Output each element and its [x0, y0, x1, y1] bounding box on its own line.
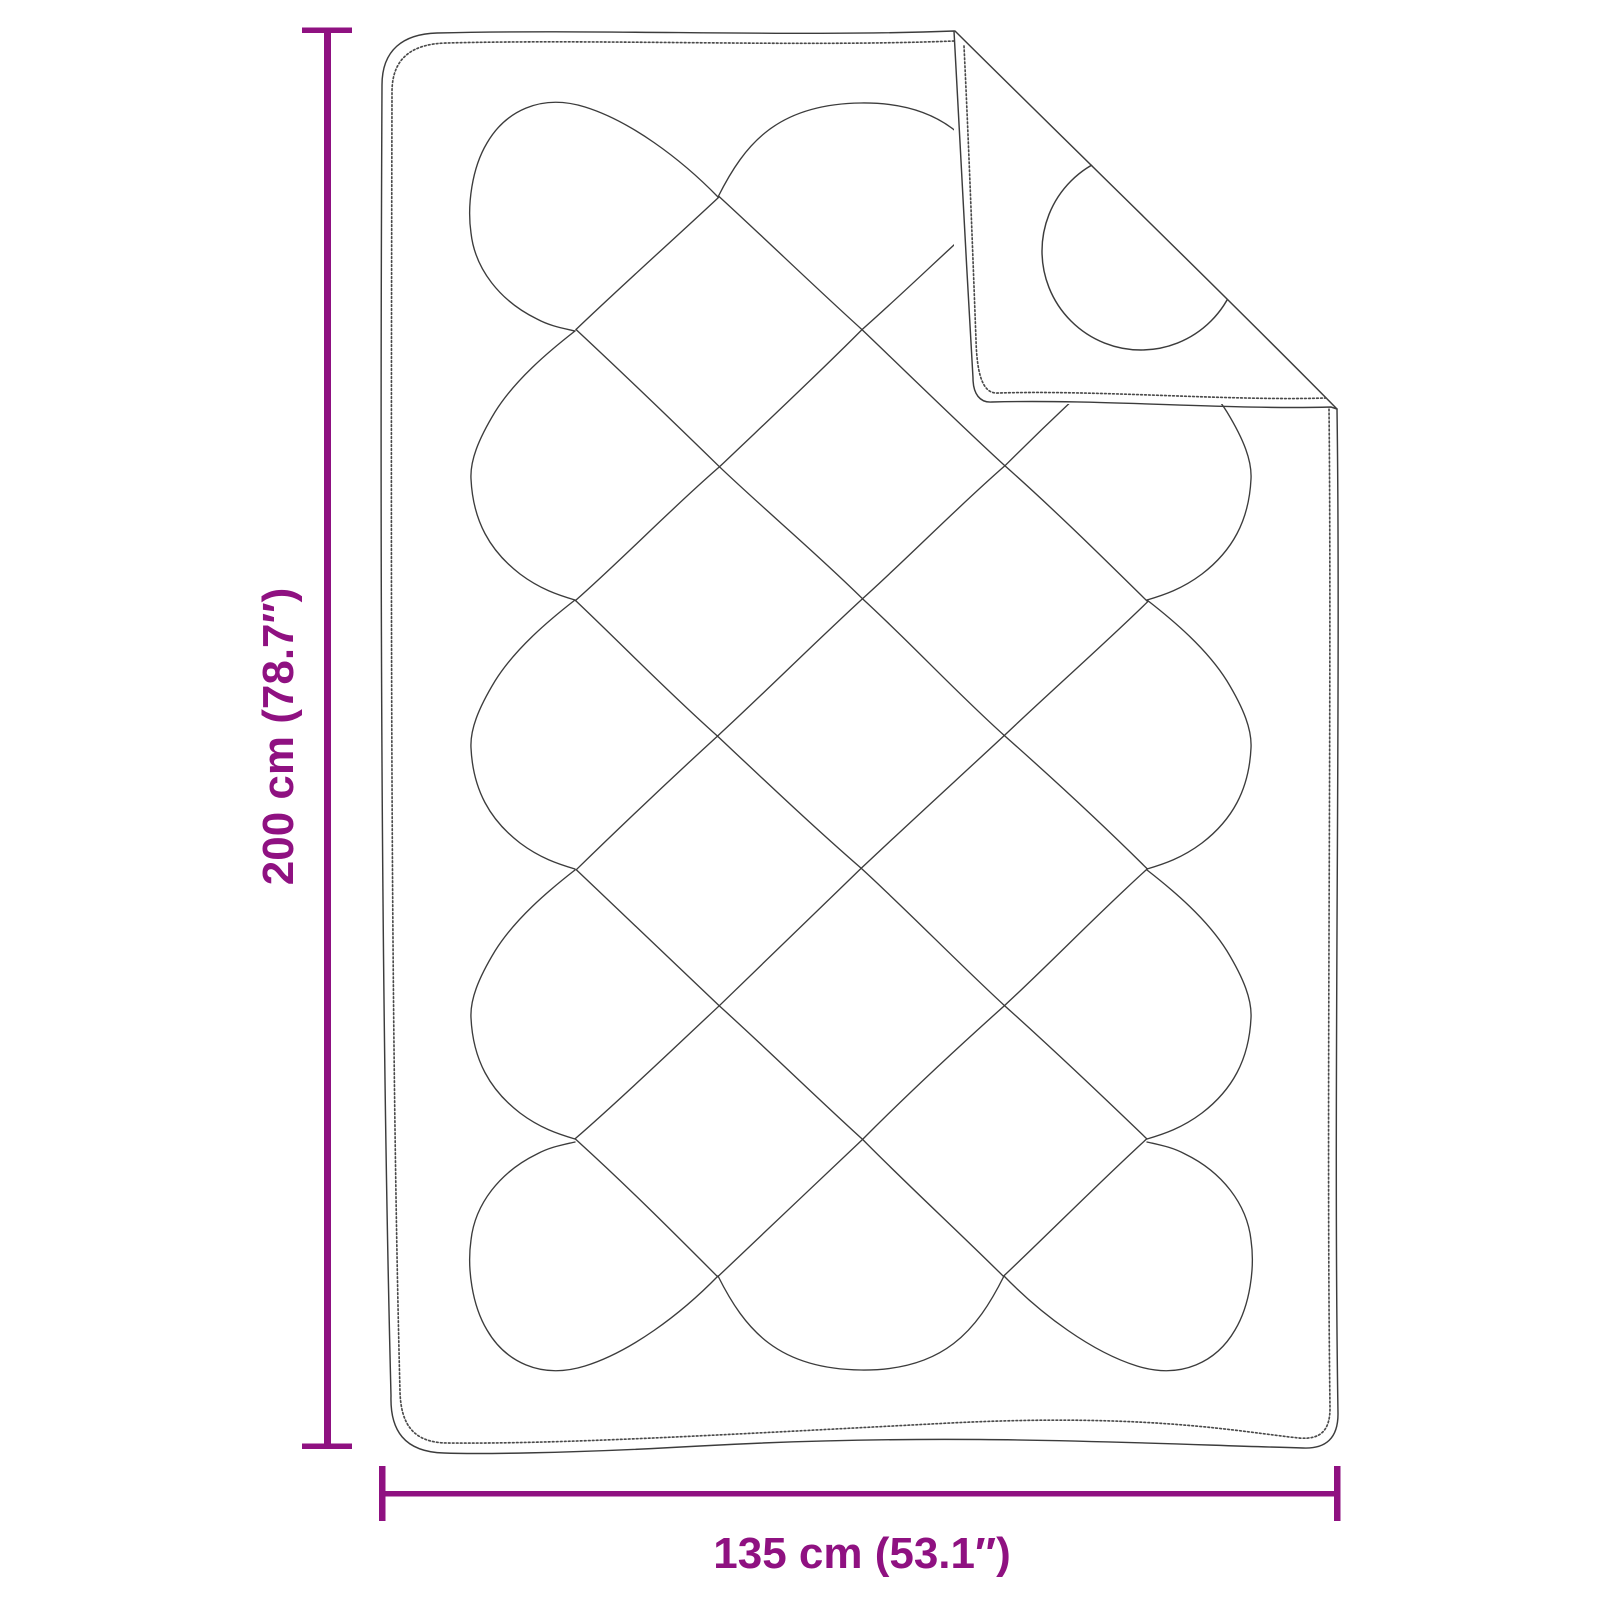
svg-text:200 cm (78.7″): 200 cm (78.7″) — [254, 588, 303, 885]
svg-text:135 cm (53.1″): 135 cm (53.1″) — [713, 1529, 1010, 1578]
